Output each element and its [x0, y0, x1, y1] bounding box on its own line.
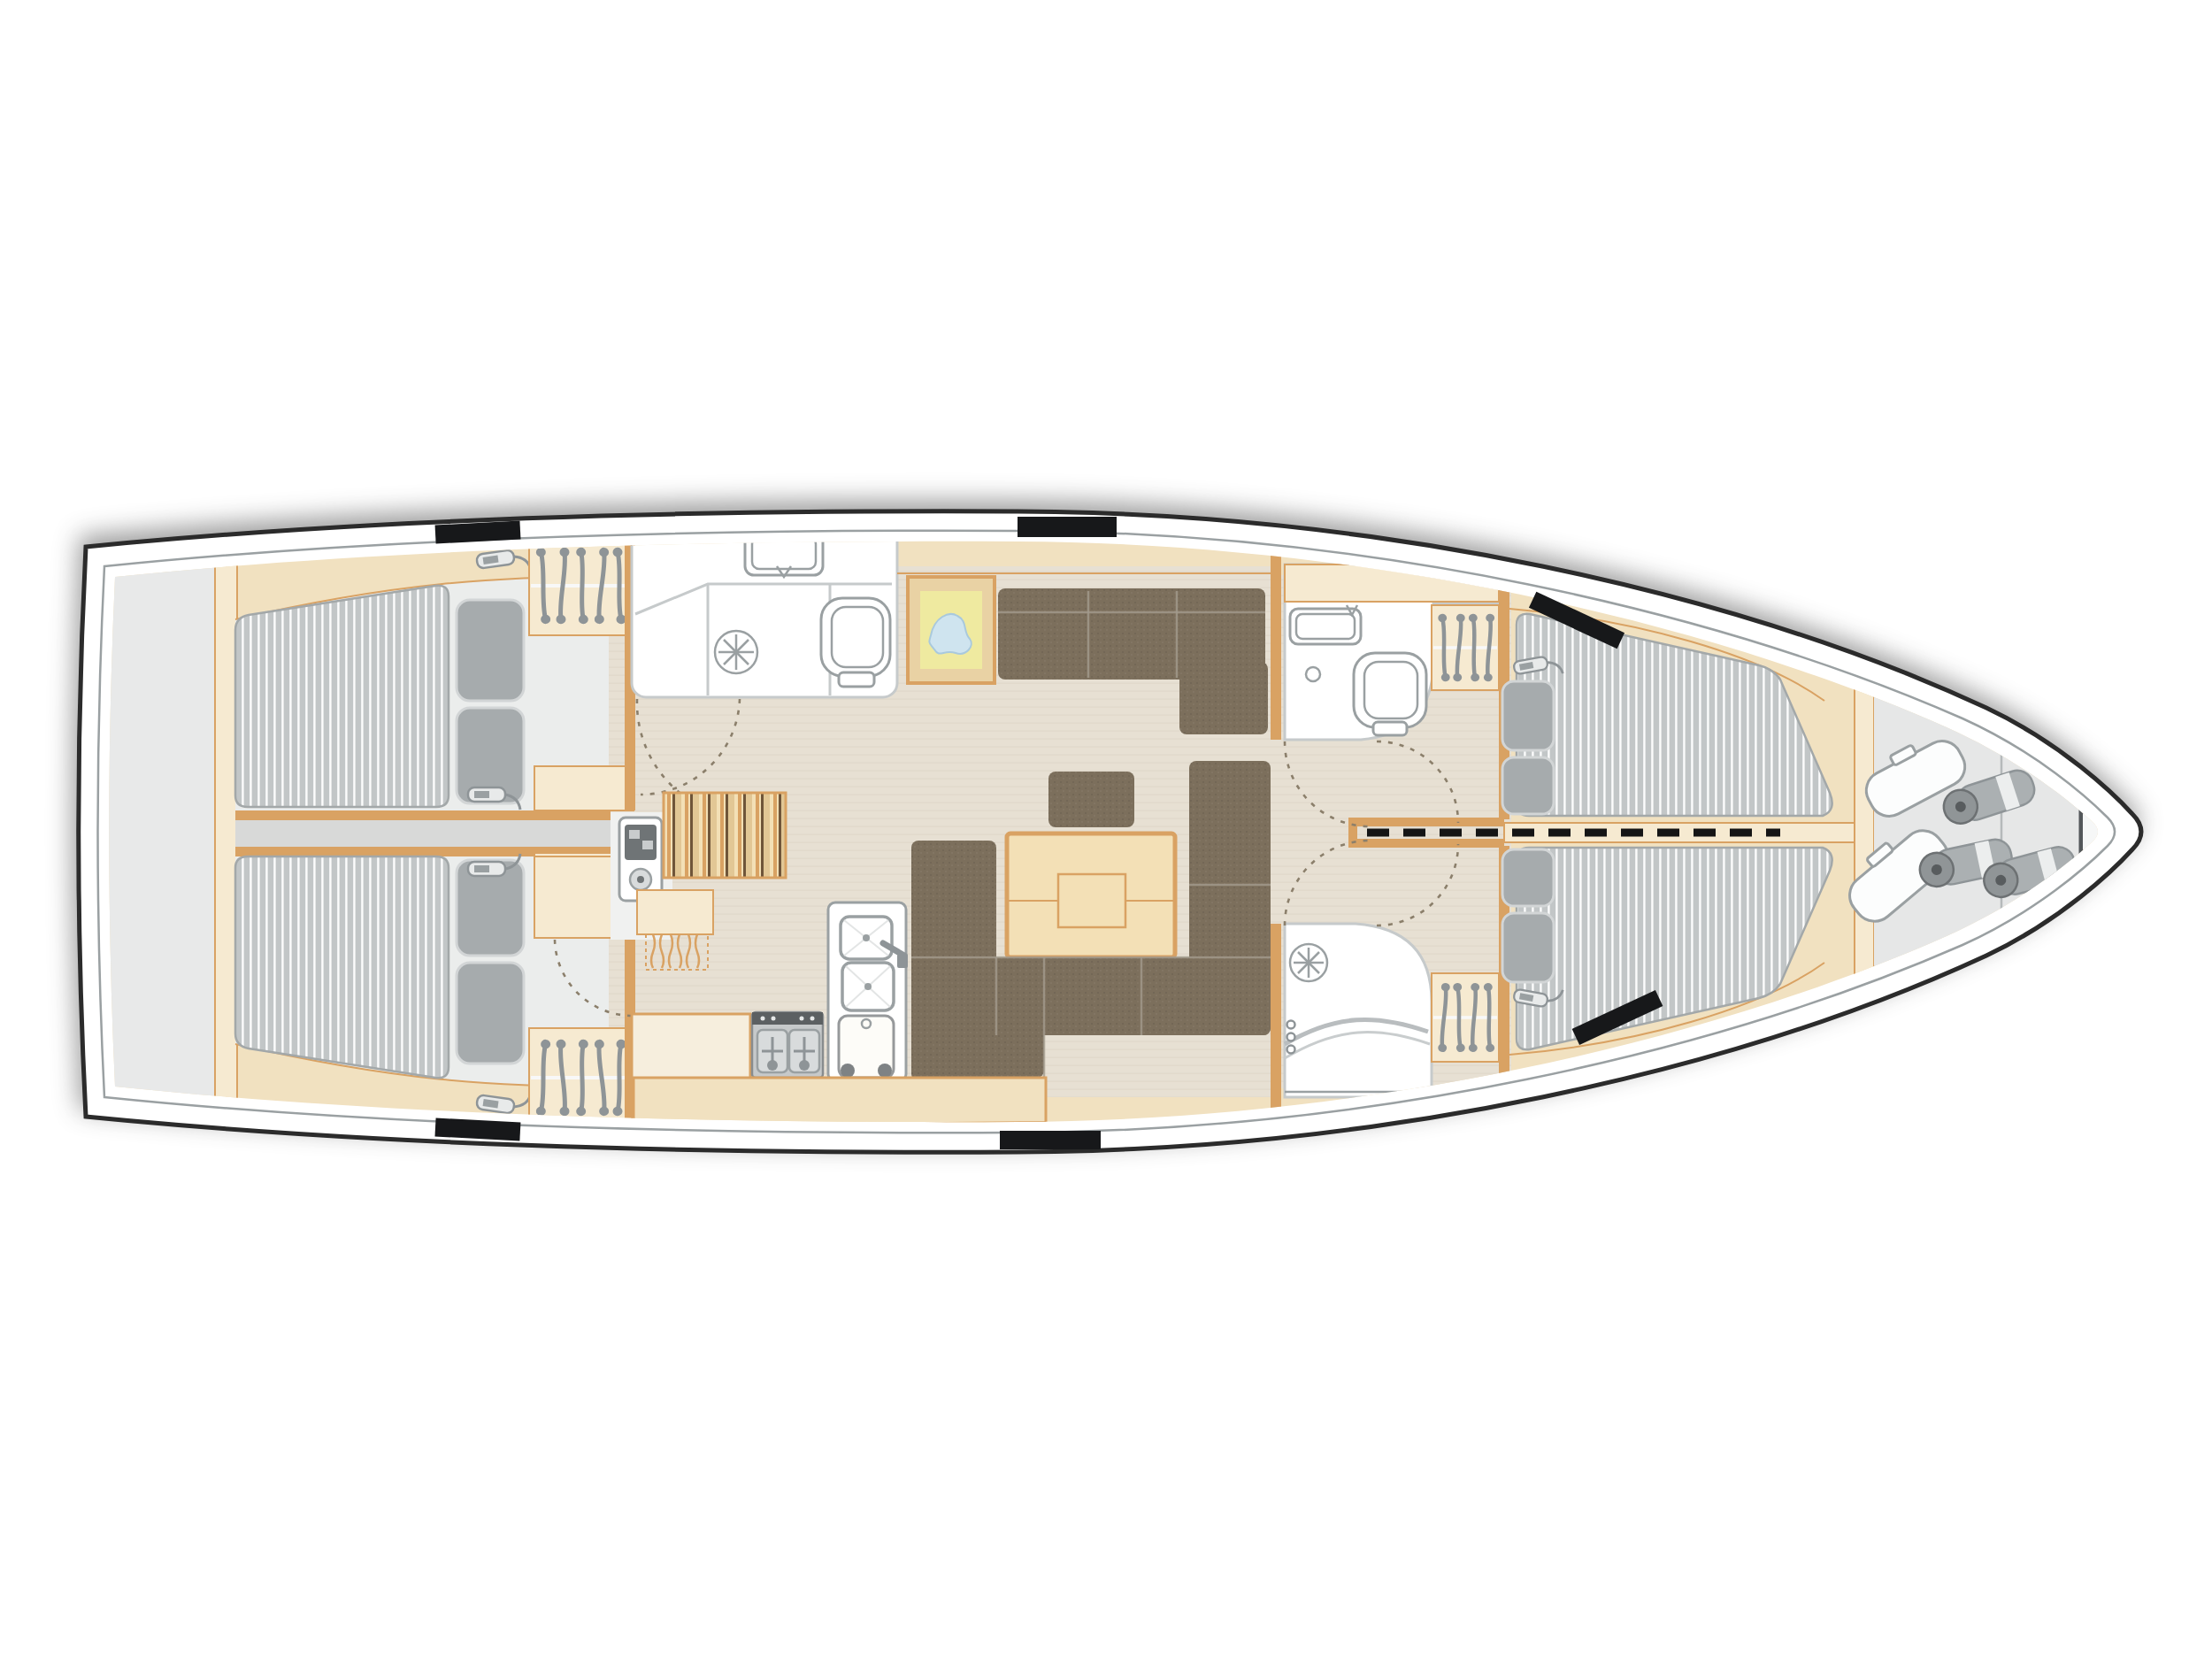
salon-center-backrest [1048, 772, 1134, 827]
stove-icon [752, 1012, 823, 1078]
forward-wardrobe-top [1432, 605, 1499, 690]
cabinet [534, 766, 634, 810]
toilet-icon [821, 598, 890, 687]
aft-head [632, 526, 897, 697]
shower-drain-icon [715, 631, 757, 673]
ladder-icon [1287, 1021, 1295, 1054]
salon-forward-wall-top [1271, 531, 1281, 740]
transom-platform [102, 531, 217, 1133]
aft-walkway [235, 810, 611, 856]
galley-counter [632, 1014, 750, 1083]
chart-table [664, 793, 786, 878]
pillow [1502, 681, 1554, 750]
yacht-floorplan-canvas [0, 0, 2212, 1659]
companionway-hatch [1018, 517, 1117, 537]
sink-icon [1290, 605, 1361, 644]
floorplan-svg [0, 0, 2212, 1659]
forward-wardrobe-bottom [1432, 973, 1499, 1062]
deck-hatch [1000, 1131, 1101, 1149]
interior [88, 522, 2159, 1154]
shower-head-icon [1290, 944, 1327, 981]
aft-bulkhead [215, 531, 237, 1133]
forward-shower-room [1285, 924, 1432, 1097]
salon-table [1007, 833, 1175, 957]
sink-fridge-unit [828, 902, 908, 1081]
fridge-icon [839, 1016, 894, 1078]
double-berth-mattress [235, 586, 449, 807]
pillow [1502, 757, 1554, 814]
salon-forward-wall-bottom [1271, 924, 1281, 1118]
pillow [457, 600, 524, 701]
wardrobe [529, 536, 632, 635]
sail-locker [1874, 566, 2081, 1097]
instrument-panel-icon [619, 818, 662, 901]
framed-chart-picture [908, 577, 995, 683]
toilet-icon [1354, 653, 1426, 735]
